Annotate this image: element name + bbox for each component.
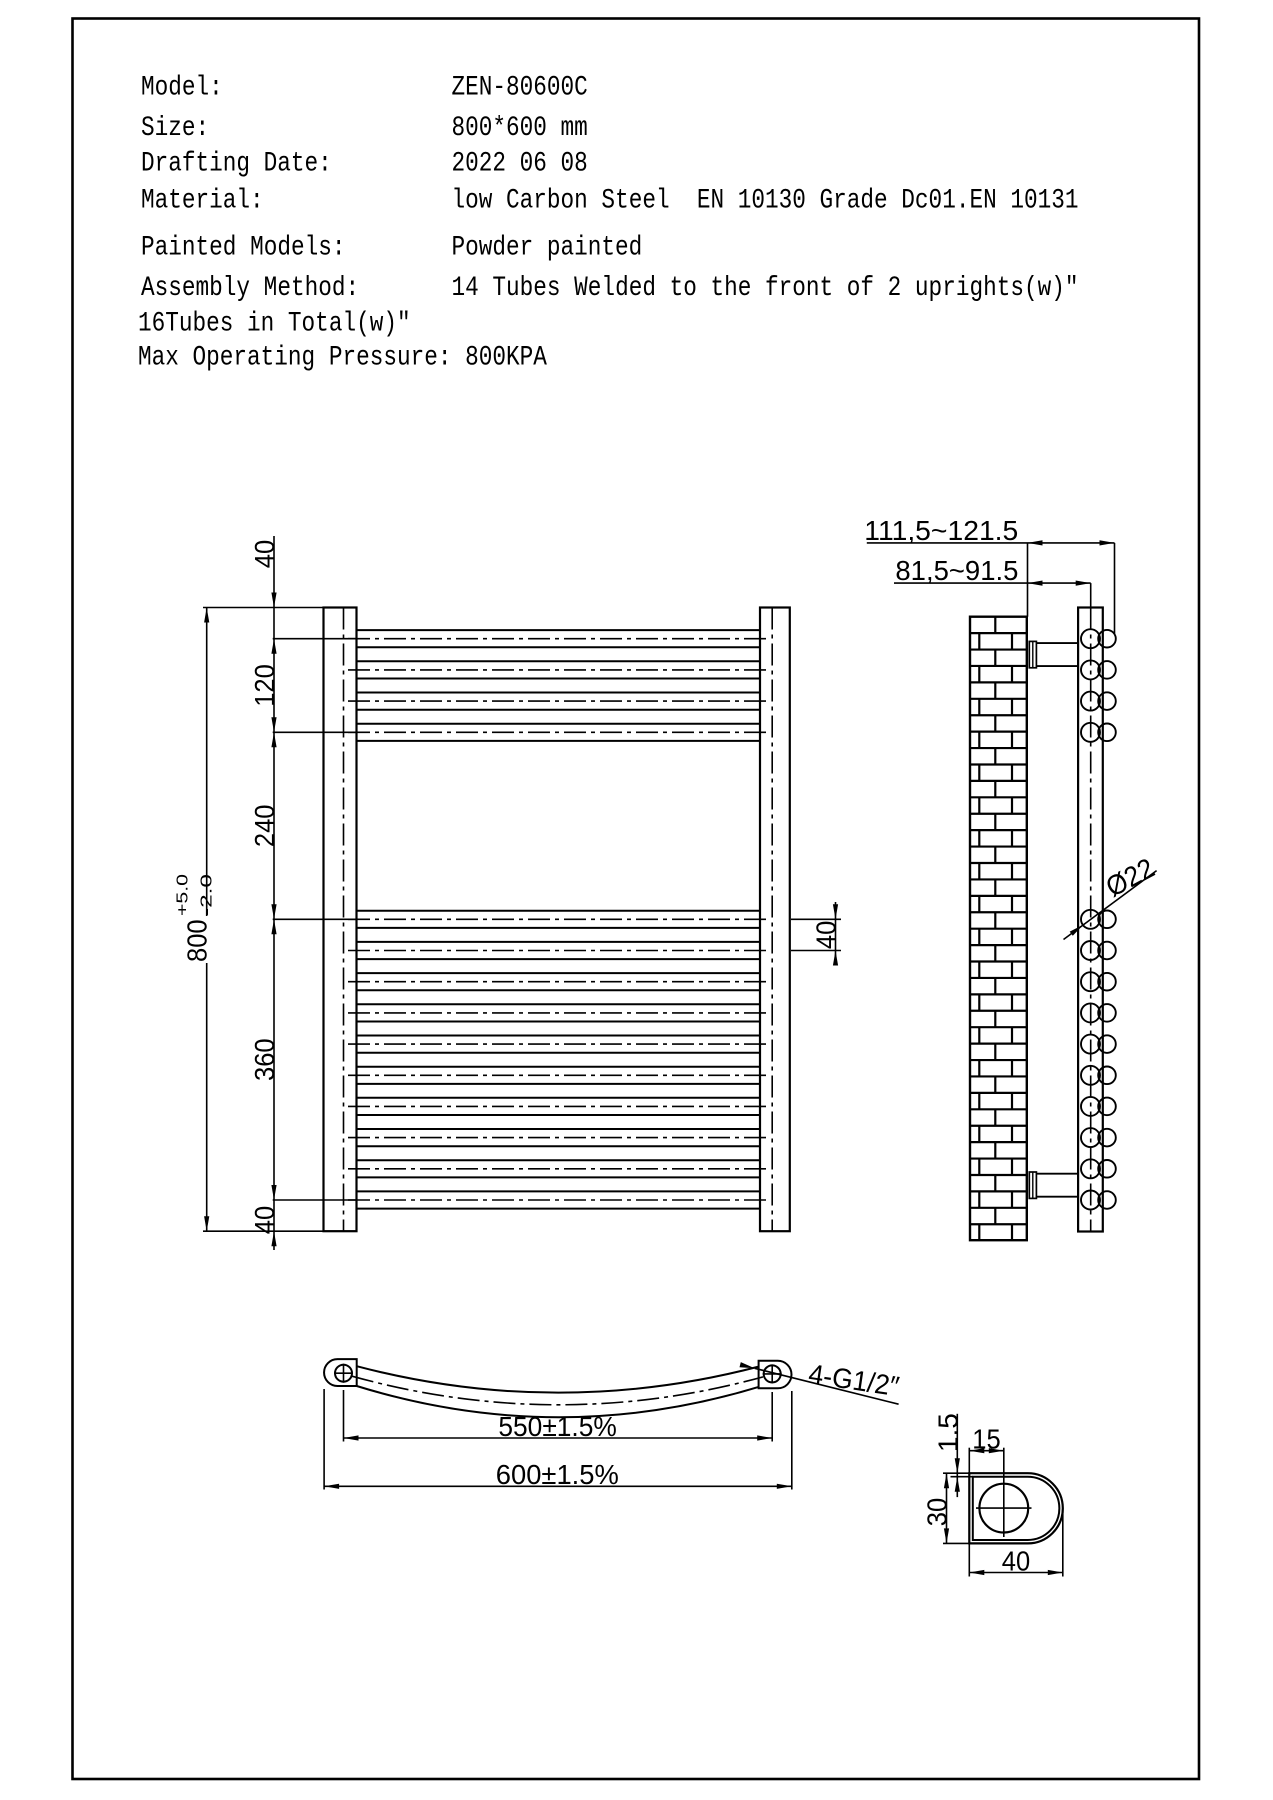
svg-text:Drafting Date:: Drafting Date: [141, 149, 332, 180]
svg-text:Painted Models:: Painted Models: [141, 233, 346, 264]
svg-text:40: 40 [1002, 1546, 1030, 1577]
svg-text:40: 40 [811, 921, 842, 949]
svg-text:2022 06 08: 2022 06 08 [452, 149, 588, 180]
svg-text:14 Tubes Welded to the front o: 14 Tubes Welded to the front of 2 uprigh… [452, 273, 1079, 304]
svg-text:30: 30 [922, 1498, 953, 1526]
svg-text:low Carbon Steel EN 10130 Gra: low Carbon Steel EN 10130 Grade Dc01.EN … [452, 186, 1079, 217]
svg-text:40: 40 [249, 1206, 280, 1234]
svg-text:Max Operating Pressure: 800KPA: Max Operating Pressure: 800KPA [138, 343, 547, 374]
svg-text:40: 40 [249, 540, 280, 568]
svg-text:111,5~121.5: 111,5~121.5 [864, 515, 1018, 546]
svg-text:16Tubes in Total(w)″: 16Tubes in Total(w)″ [138, 309, 411, 340]
svg-text:240: 240 [249, 805, 280, 848]
svg-text:Powder painted: Powder painted [452, 233, 643, 264]
svg-text:Material:: Material: [141, 186, 264, 217]
svg-text:-2.0: -2.0 [199, 874, 216, 916]
svg-text:120: 120 [249, 664, 280, 707]
svg-text:600±1.5%: 600±1.5% [496, 1459, 619, 1490]
svg-text:81,5~91.5: 81,5~91.5 [895, 555, 1018, 586]
svg-text:1.5: 1.5 [932, 1413, 963, 1452]
svg-text:360: 360 [249, 1038, 280, 1081]
svg-text:Model:: Model: [141, 73, 223, 104]
svg-text:ZEN-80600C: ZEN-80600C [452, 73, 588, 104]
svg-text:Assembly Method:: Assembly Method: [141, 273, 359, 304]
svg-text:550±1.5%: 550±1.5% [498, 1411, 616, 1442]
svg-text:15: 15 [972, 1424, 1000, 1455]
svg-text:800*600 mm: 800*600 mm [452, 113, 588, 144]
svg-text:800: 800 [182, 919, 213, 962]
svg-text:+5.0: +5.0 [175, 874, 192, 916]
svg-text:Size:: Size: [141, 113, 209, 144]
